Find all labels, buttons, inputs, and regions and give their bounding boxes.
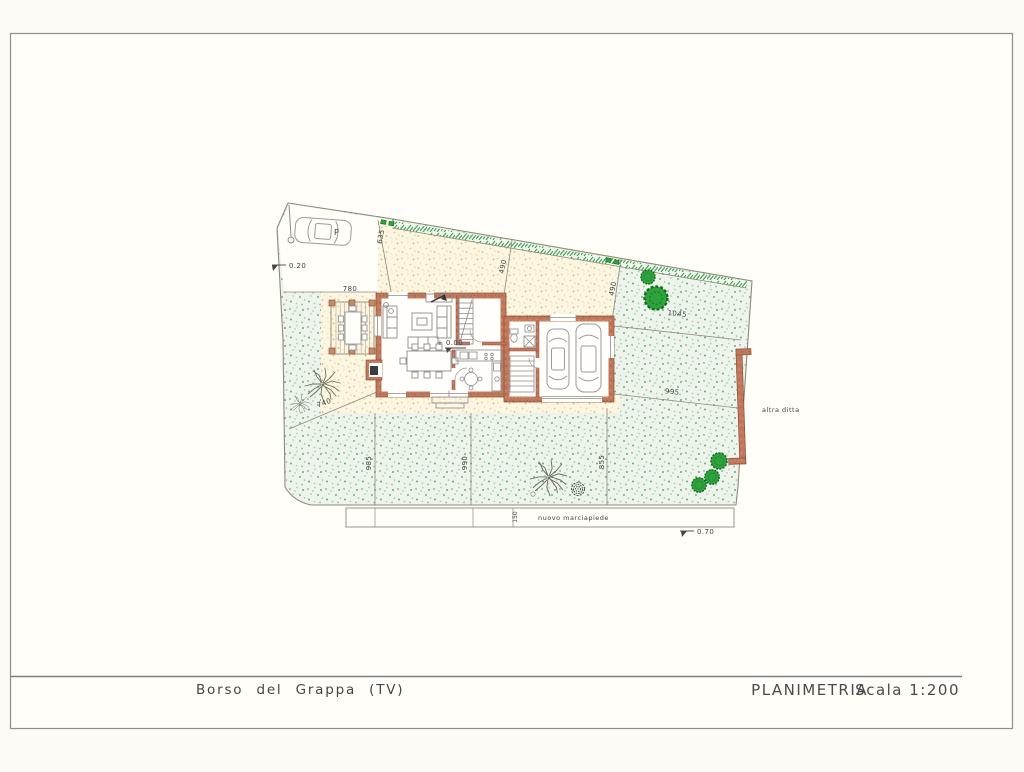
garage-block-interior [510,322,609,397]
planimetria-drawing: Borso del Grappa (TV) PLANIMETRIA Scala … [0,0,1024,768]
bush-green [705,470,719,484]
dimension-south-right: 855 [598,455,606,470]
svg-text:0.20: 0.20 [289,262,306,270]
dimension-east-lower: 995 [665,387,680,396]
neighbor-label: altra ditta [762,406,800,414]
scanned-sheet: Borso del Grappa (TV) PLANIMETRIA Scala … [0,0,1024,768]
location-title: Borso del Grappa (TV) [196,682,404,698]
bush-green [692,478,706,492]
tree-green-large [645,287,668,310]
dimension-south-left: 985 [365,456,373,471]
dimension-south-center: 990 [461,456,469,471]
bush-green [711,453,727,469]
entrance-porch [366,360,382,380]
hedge-post [381,220,387,225]
drawing-title: PLANIMETRIA [751,681,868,699]
dimension-sidewalk: 150 [512,511,519,523]
sidewalk-label: nuovo marciapiede [538,514,609,522]
hedge-post [606,258,612,263]
dimension-pergola: 780 [343,285,358,293]
svg-text:+ 0.00: + 0.00 [437,339,463,347]
svg-text:0.70: 0.70 [697,528,714,536]
tree-green-small [641,270,655,284]
sidewalk: nuovo marciapiede 150 [346,508,734,527]
parking-label: P [334,228,339,237]
survey-point [531,492,535,496]
hedge-post [389,221,395,226]
scale-label: Scala 1:200 [855,681,960,699]
hedge-post [614,260,620,265]
boundary-marker [288,237,294,243]
